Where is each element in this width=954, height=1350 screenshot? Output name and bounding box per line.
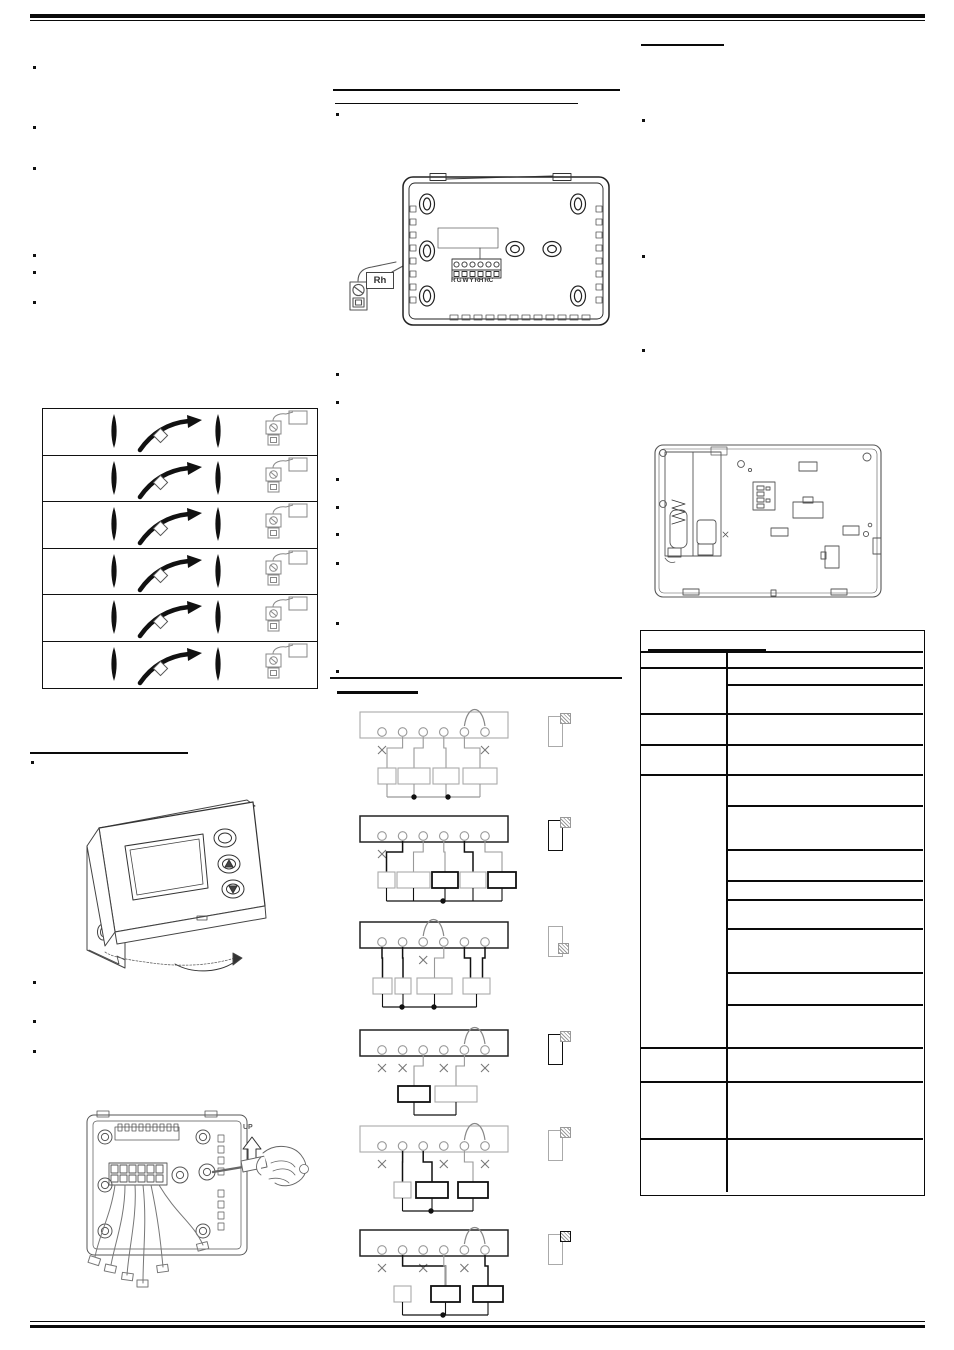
terminal-block [452, 259, 501, 278]
toggle-marker-icon [215, 600, 220, 634]
spec-table-subrow-border [726, 805, 922, 806]
toggle-marker-icon [215, 507, 220, 541]
rotate-gesture-icon [140, 415, 202, 450]
dip-setting-row-art [43, 409, 316, 454]
bullet-point [33, 301, 36, 304]
rotate-gesture-icon [140, 648, 202, 683]
rotate-gesture-icon [140, 462, 202, 497]
spec-table-row-border [641, 1138, 923, 1139]
spec-table-row-border [641, 1047, 923, 1048]
spec-table-row-border [641, 744, 923, 745]
bullet-point [336, 670, 339, 673]
toggle-marker-icon [215, 647, 220, 681]
bullet-point [642, 255, 645, 258]
spec-table-row-border [641, 774, 923, 775]
spec-table-heading-underline [648, 649, 766, 651]
dip-setting-table [42, 408, 318, 689]
bullet-point [33, 1050, 36, 1053]
bullet-point [33, 167, 36, 170]
toggle-marker-icon [111, 507, 116, 541]
wallplate-wiring-drawing [87, 1111, 309, 1287]
dip-setting-row-art [43, 502, 316, 547]
dip-setting-row [43, 595, 317, 642]
spec-table-row-border [641, 651, 923, 652]
bullet-point [642, 119, 645, 122]
toggle-marker-icon [215, 554, 220, 588]
rotate-gesture-icon [140, 601, 202, 636]
terminal-row-label: R G W Y RH RC [451, 277, 503, 285]
spec-table-subrow-border [726, 928, 922, 929]
toggle-marker-icon [111, 414, 116, 448]
toggle-marker-icon [111, 647, 116, 681]
rh-screw-terminal-icon [266, 411, 307, 445]
bullet-point [336, 506, 339, 509]
rh-screw-terminal-icon [266, 458, 307, 492]
bullet-point [336, 373, 339, 376]
bullet-point [336, 533, 339, 536]
rotate-gesture-icon [140, 508, 202, 543]
dip-setting-row-art [43, 595, 316, 640]
bullet-point [336, 622, 339, 625]
bullet-point [33, 254, 36, 257]
rotate-gesture-icon [140, 555, 202, 590]
bullet-point [336, 401, 339, 404]
spec-table-column-divider [726, 651, 727, 1192]
spec-table-subrow-border [726, 1004, 922, 1005]
toggle-marker-icon [111, 461, 116, 495]
spec-table-subrow-border [726, 899, 922, 900]
spec-table-subrow-border [726, 684, 922, 685]
wallplate-rear-diagram [350, 174, 609, 326]
rh-screw-terminal-icon [266, 644, 307, 678]
bullet-point [31, 761, 34, 764]
bullet-point [33, 271, 36, 274]
bullet-point [642, 349, 645, 352]
dip-setting-row-art [43, 549, 316, 594]
toggle-marker-icon [215, 414, 220, 448]
dip-setting-row [43, 502, 317, 549]
bullet-point [33, 66, 36, 69]
toggle-marker-icon [215, 461, 220, 495]
dip-setting-row [43, 409, 317, 456]
toggle-marker-icon [111, 554, 116, 588]
toggle-marker-icon [111, 600, 116, 634]
bullet-point [336, 562, 339, 565]
manual-page: Rh R G W Y RH RC UP [0, 0, 954, 1350]
up-orientation-label: UP [243, 1124, 263, 1133]
dip-setting-row [43, 642, 317, 689]
rh-screw-terminal-icon [266, 504, 307, 538]
dip-setting-row [43, 549, 317, 596]
spec-table-row-border [641, 713, 923, 714]
spec-table-subrow-border [726, 880, 922, 881]
dip-setting-row [43, 456, 317, 503]
thermostat-3d-drawing [87, 800, 266, 971]
bullet-point [33, 126, 36, 129]
spec-table-row-border [641, 1081, 923, 1082]
spec-table-subrow-border [726, 849, 922, 850]
bullet-point [33, 981, 36, 984]
dip-setting-row-art [43, 642, 316, 687]
spec-table-row-border [641, 667, 923, 668]
rh-terminal-label: Rh [366, 272, 394, 289]
spec-table-subrow-border [726, 972, 922, 973]
thermostat-inside-drawing [655, 445, 881, 597]
bullet-point [33, 1020, 36, 1023]
rh-screw-terminal-icon [266, 551, 307, 585]
rh-screw-terminal-icon [266, 597, 307, 631]
bullet-point [336, 113, 339, 116]
dip-setting-row-art [43, 456, 316, 501]
bullet-point [336, 478, 339, 481]
spec-table [640, 630, 925, 1196]
